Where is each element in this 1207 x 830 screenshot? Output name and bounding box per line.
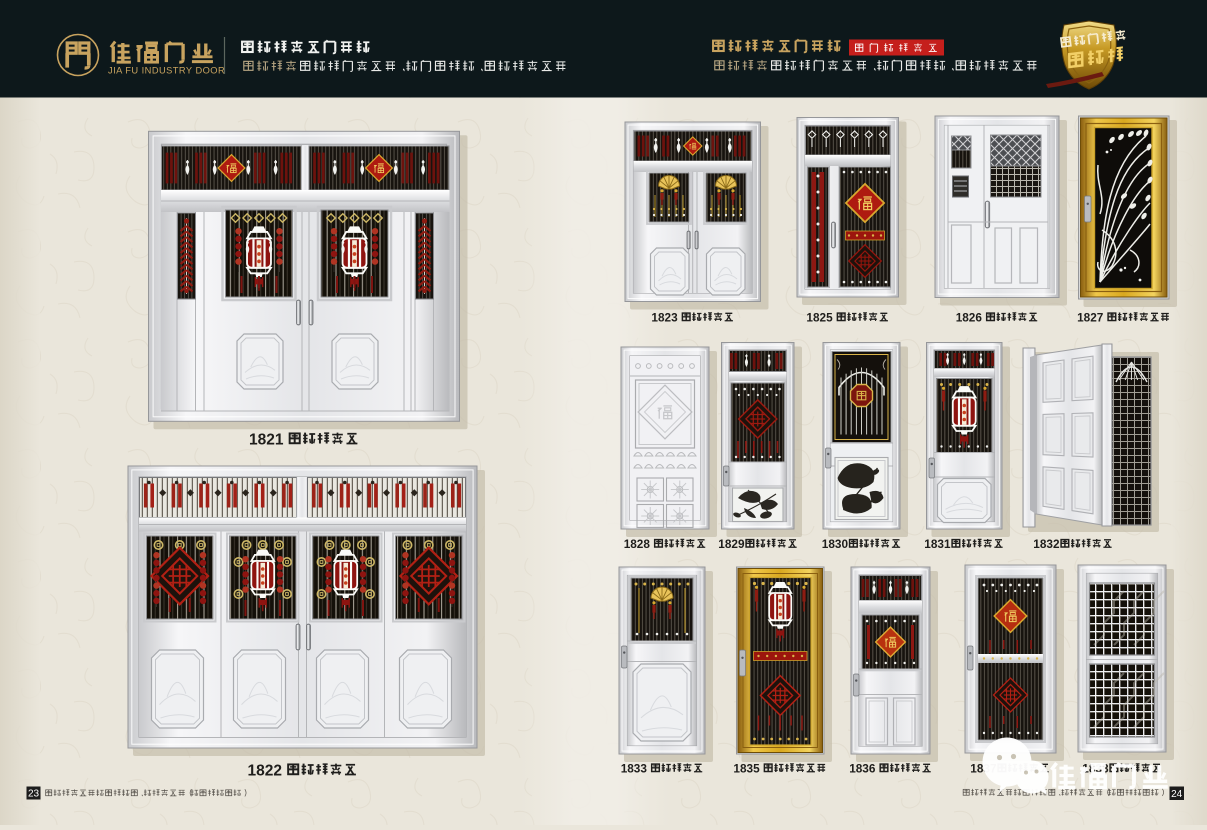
svg-text:1823: 1823 [651,311,678,325]
svg-text:JIA FU INDUSTRY DOOR: JIA FU INDUSTRY DOOR [108,66,225,76]
svg-text:1826: 1826 [956,311,983,325]
svg-text:1829: 1829 [718,537,745,551]
svg-text:1830: 1830 [822,537,849,551]
svg-text:1825: 1825 [806,311,833,325]
svg-text:23: 23 [28,789,40,800]
svg-text:1831: 1831 [924,537,951,551]
svg-text:1828: 1828 [624,537,651,551]
svg-text:1822: 1822 [248,763,282,780]
svg-text:1821: 1821 [249,432,284,449]
svg-text:24: 24 [1171,789,1183,800]
svg-text:1833: 1833 [621,762,648,776]
svg-text:1832: 1832 [1033,537,1060,551]
svg-text:1836: 1836 [849,762,876,776]
svg-text:1835: 1835 [733,762,760,776]
svg-text:1827: 1827 [1077,311,1104,325]
